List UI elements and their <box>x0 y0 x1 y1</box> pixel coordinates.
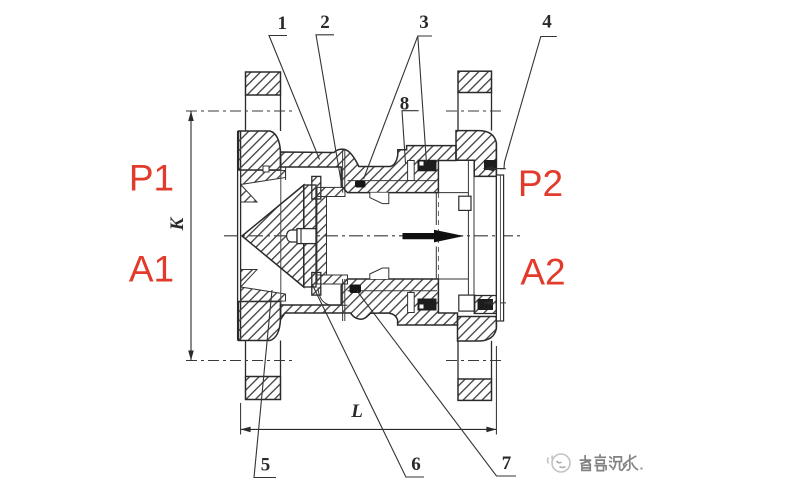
svg-text:A2: A2 <box>520 252 565 293</box>
svg-text:2: 2 <box>320 12 330 33</box>
svg-text:1: 1 <box>278 13 288 34</box>
svg-text:3: 3 <box>419 12 429 33</box>
svg-text:K: K <box>167 216 188 231</box>
svg-text:L: L <box>350 401 363 422</box>
svg-text:A1: A1 <box>129 249 174 290</box>
svg-text:5: 5 <box>261 455 271 476</box>
svg-text:P1: P1 <box>129 158 174 199</box>
svg-text:6: 6 <box>411 454 421 475</box>
svg-text:7: 7 <box>502 453 512 474</box>
svg-text:8: 8 <box>400 94 410 115</box>
svg-text:4: 4 <box>542 12 552 33</box>
svg-text:P2: P2 <box>518 163 563 204</box>
